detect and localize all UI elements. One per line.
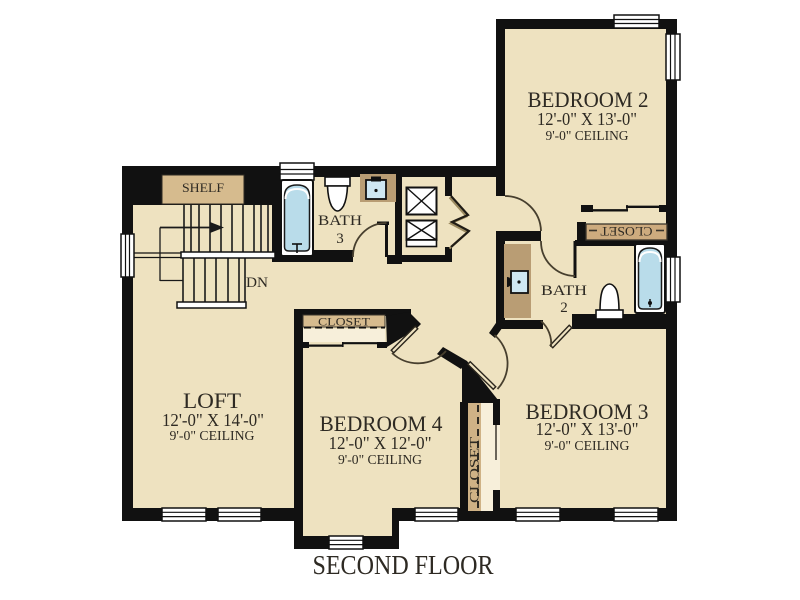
svg-text:12'-0" X 13'-0": 12'-0" X 13'-0"	[536, 419, 639, 439]
svg-text:12'-0" X 12'-0": 12'-0" X 12'-0"	[329, 433, 432, 453]
svg-text:2: 2	[560, 300, 568, 316]
svg-text:9'-0" CEILING: 9'-0" CEILING	[545, 439, 630, 454]
svg-text:12'-0" X 14'-0": 12'-0" X 14'-0"	[162, 410, 264, 430]
svg-text:SHELF: SHELF	[182, 180, 224, 195]
svg-text:12'-0" X 13'-0": 12'-0" X 13'-0"	[537, 109, 637, 129]
svg-text:9'-0" CEILING: 9'-0" CEILING	[170, 429, 255, 444]
svg-text:CLOSET: CLOSET	[318, 315, 371, 329]
svg-text:3: 3	[336, 231, 344, 247]
svg-text:DN: DN	[246, 275, 268, 291]
svg-text:9'-0" CEILING: 9'-0" CEILING	[546, 129, 629, 144]
svg-text:9'-0" CEILING: 9'-0" CEILING	[338, 453, 422, 468]
svg-text:SECOND FLOOR: SECOND FLOOR	[313, 550, 494, 580]
svg-text:BATH: BATH	[318, 213, 362, 229]
svg-text:CLOSET: CLOSET	[467, 437, 482, 503]
svg-text:CLOSET: CLOSET	[600, 224, 652, 239]
svg-text:BATH: BATH	[541, 283, 587, 299]
